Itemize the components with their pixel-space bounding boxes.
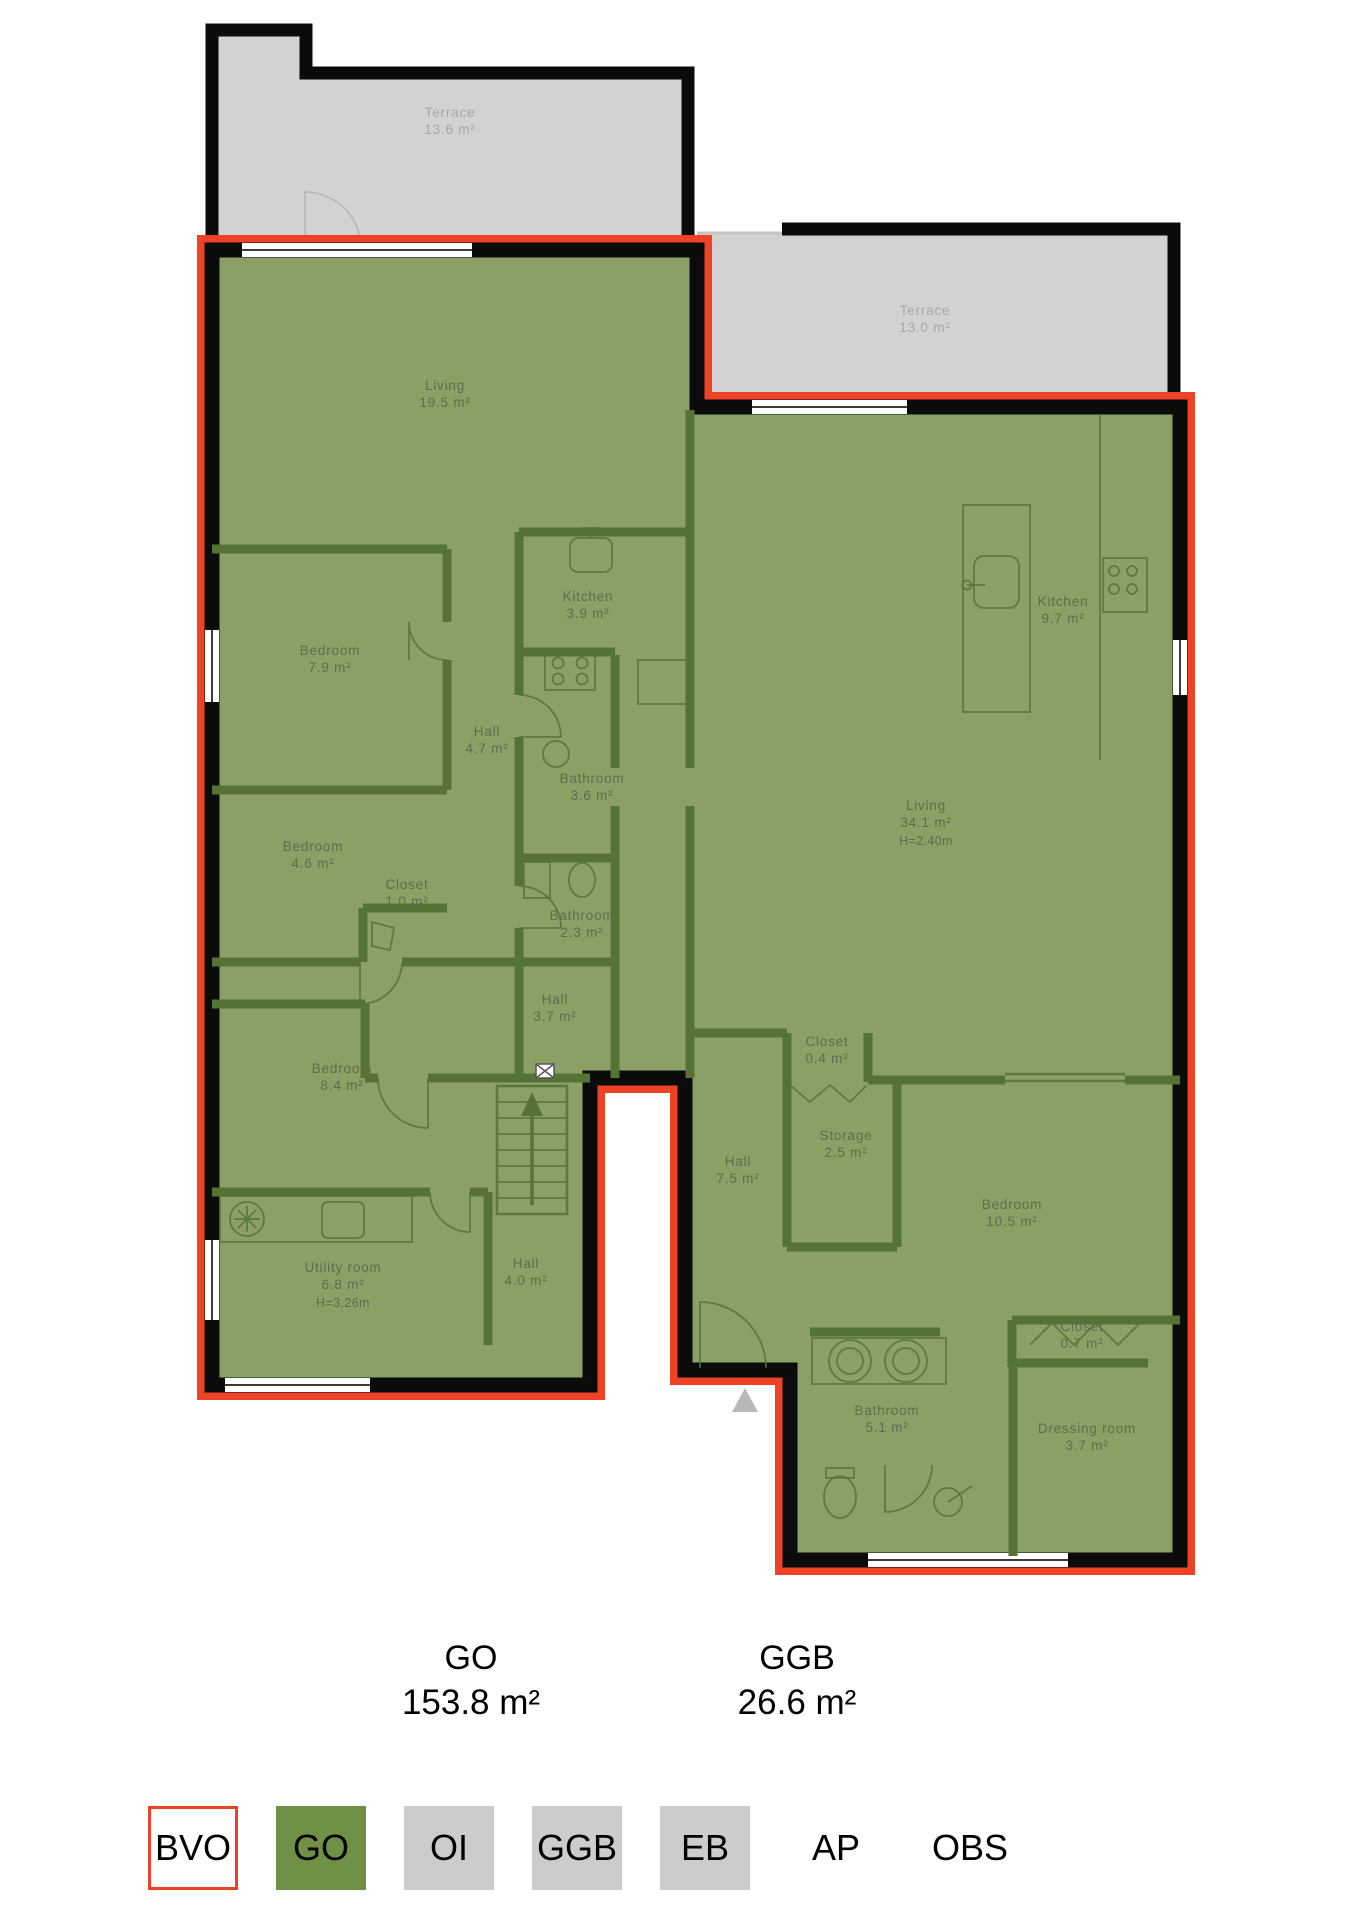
- legend-label: AP: [812, 1827, 860, 1869]
- entrance-arrow-icon: [732, 1388, 758, 1412]
- floor-plan: [0, 0, 1358, 1920]
- legend-label: EB: [681, 1827, 729, 1869]
- summary-go-code: GO: [402, 1636, 540, 1680]
- legend-label: BVO: [155, 1827, 231, 1869]
- summary-ggb-value: 26.6 m²: [738, 1680, 857, 1726]
- floorplan-page: Terrace13.6 m²Terrace13.0 m²Living19.5 m…: [0, 0, 1358, 1920]
- summary-go-value: 153.8 m²: [402, 1680, 540, 1726]
- summary-ggb: GGB 26.6 m²: [738, 1636, 857, 1726]
- washer-icon: [230, 1202, 264, 1236]
- legend-item-oi[interactable]: OI: [404, 1806, 494, 1890]
- mail-slot-icon: [536, 1064, 554, 1078]
- legend-label: OI: [430, 1827, 468, 1869]
- legend-item-ggb[interactable]: GGB: [532, 1806, 622, 1890]
- terrace-left: [212, 30, 688, 253]
- legend-item-bvo[interactable]: BVO: [148, 1806, 238, 1890]
- legend-item-ap[interactable]: AP: [788, 1806, 884, 1890]
- terrace-right: [697, 229, 1180, 407]
- legend-item-obs[interactable]: OBS: [922, 1806, 1018, 1890]
- legend: BVOGOOIGGBEBAPOBS: [148, 1806, 1018, 1890]
- legend-label: OBS: [932, 1827, 1008, 1869]
- summary-go: GO 153.8 m²: [402, 1636, 540, 1726]
- legend-label: GO: [293, 1827, 349, 1869]
- legend-item-eb[interactable]: EB: [660, 1806, 750, 1890]
- legend-item-go[interactable]: GO: [276, 1806, 366, 1890]
- summary-ggb-code: GGB: [738, 1636, 857, 1680]
- legend-label: GGB: [537, 1827, 617, 1869]
